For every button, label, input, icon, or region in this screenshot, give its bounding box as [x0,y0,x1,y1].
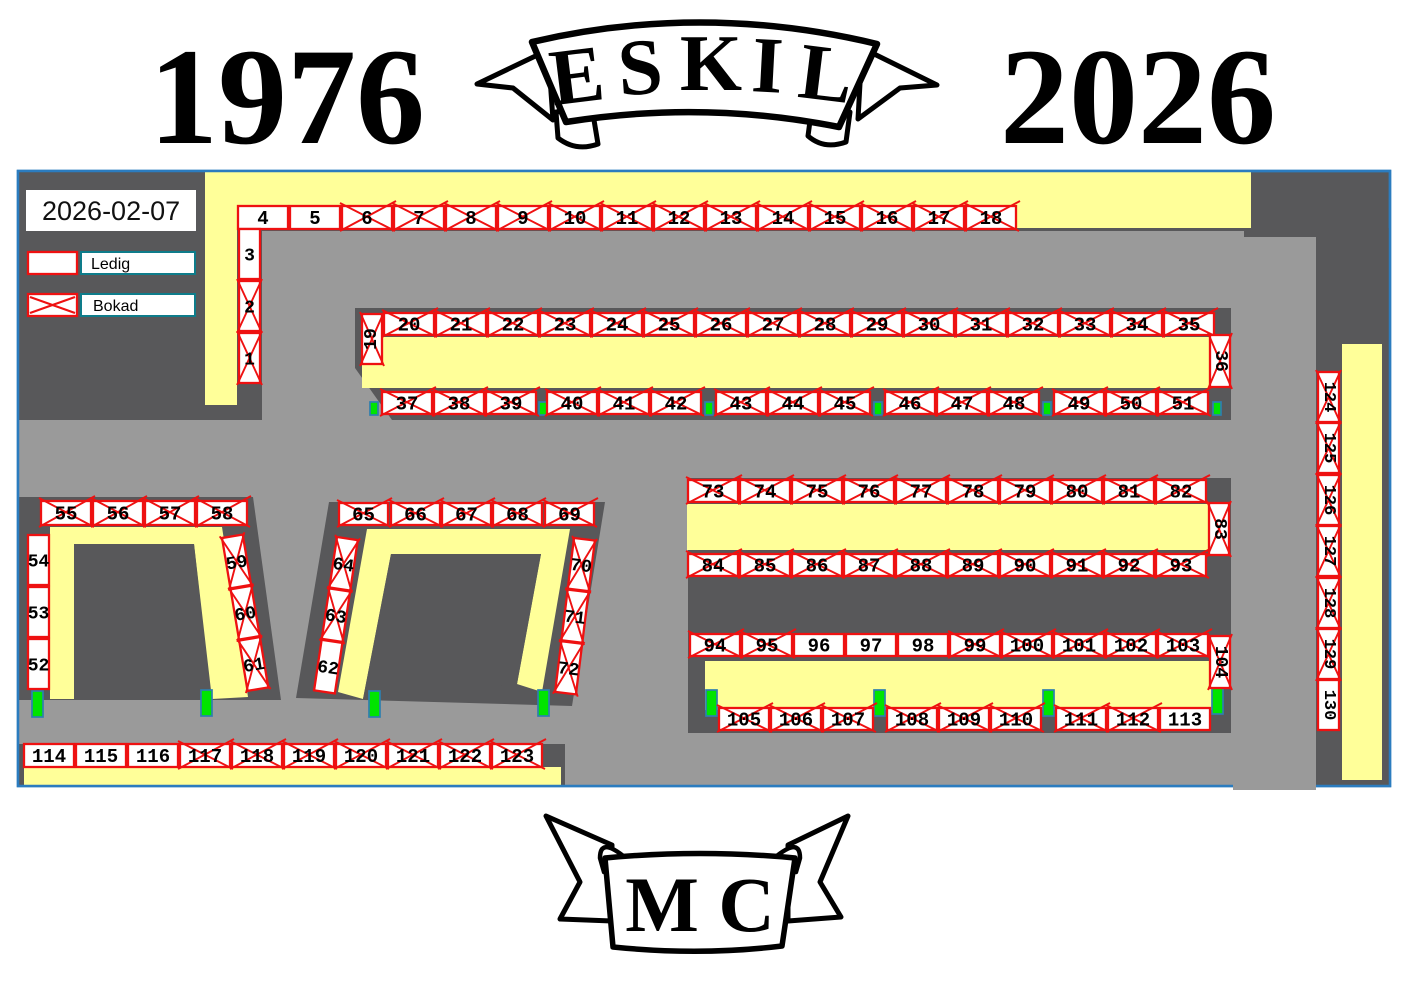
svg-text:114: 114 [32,746,66,768]
svg-text:53: 53 [28,605,50,625]
svg-text:110: 110 [999,710,1033,732]
svg-text:28: 28 [814,315,837,337]
svg-text:14: 14 [772,208,795,230]
svg-text:47: 47 [951,394,974,416]
svg-text:75: 75 [806,482,829,504]
svg-text:29: 29 [866,315,889,337]
svg-text:127: 127 [1319,536,1338,567]
svg-text:7: 7 [413,208,424,230]
svg-text:5: 5 [309,208,320,230]
svg-text:87: 87 [858,556,881,578]
svg-text:1: 1 [244,351,255,371]
svg-text:9: 9 [517,208,528,230]
svg-text:46: 46 [899,394,922,416]
svg-text:109: 109 [947,710,981,732]
svg-text:58: 58 [211,504,234,526]
svg-text:90: 90 [1014,556,1037,578]
svg-text:51: 51 [1172,394,1195,416]
svg-text:12: 12 [668,208,691,230]
svg-text:130: 130 [1319,690,1338,721]
svg-text:13: 13 [720,208,743,230]
svg-text:70: 70 [569,556,593,578]
svg-text:66: 66 [404,505,427,527]
svg-text:77: 77 [910,482,933,504]
svg-text:67: 67 [455,505,478,527]
svg-text:118: 118 [240,746,274,768]
svg-text:122: 122 [448,746,482,768]
svg-text:112: 112 [1116,710,1150,732]
svg-text:16: 16 [876,208,899,230]
svg-text:40: 40 [561,394,584,416]
svg-text:M C: M C [625,861,774,948]
svg-text:113: 113 [1168,710,1202,732]
svg-text:120: 120 [344,746,378,768]
svg-text:Ledig: Ledig [91,256,130,273]
svg-text:102: 102 [1114,636,1148,658]
svg-text:74: 74 [754,482,777,504]
svg-text:80: 80 [1066,482,1089,504]
svg-text:94: 94 [704,636,727,658]
svg-text:96: 96 [808,636,831,658]
svg-text:100: 100 [1010,636,1044,658]
svg-text:73: 73 [702,482,725,504]
svg-text:124: 124 [1319,382,1338,413]
svg-text:56: 56 [107,504,130,526]
svg-text:24: 24 [606,315,629,337]
svg-text:19: 19 [362,328,382,350]
svg-text:42: 42 [665,394,688,416]
svg-text:64: 64 [331,555,356,578]
svg-text:129: 129 [1319,639,1338,670]
svg-text:93: 93 [1170,556,1193,578]
svg-text:52: 52 [28,657,50,677]
svg-text:11: 11 [616,208,639,230]
svg-text:106: 106 [779,710,813,732]
svg-text:38: 38 [448,394,471,416]
svg-text:97: 97 [860,636,883,658]
svg-text:1976: 1976 [149,20,425,173]
svg-text:116: 116 [136,746,170,768]
svg-text:126: 126 [1319,485,1338,516]
svg-text:8: 8 [465,208,476,230]
svg-text:32: 32 [1022,315,1045,337]
svg-text:4: 4 [257,208,268,230]
svg-text:81: 81 [1118,482,1141,504]
svg-text:Bokad: Bokad [93,298,138,315]
svg-text:65: 65 [352,505,375,527]
svg-text:23: 23 [554,315,577,337]
svg-text:99: 99 [964,636,987,658]
svg-text:10: 10 [564,208,587,230]
svg-text:98: 98 [912,636,935,658]
svg-text:26: 26 [710,315,733,337]
svg-text:15: 15 [824,208,847,230]
svg-text:59: 59 [225,552,250,575]
svg-text:79: 79 [1014,482,1037,504]
svg-text:92: 92 [1118,556,1141,578]
svg-text:91: 91 [1066,556,1089,578]
svg-text:107: 107 [831,710,865,732]
svg-text:41: 41 [613,394,636,416]
svg-text:104: 104 [1210,646,1230,679]
svg-text:88: 88 [910,556,933,578]
svg-text:63: 63 [323,606,347,629]
svg-text:55: 55 [55,504,78,526]
svg-text:45: 45 [834,394,857,416]
svg-text:68: 68 [506,505,529,527]
svg-text:71: 71 [563,607,587,630]
svg-text:17: 17 [928,208,951,230]
svg-text:2: 2 [244,299,255,319]
svg-text:78: 78 [962,482,985,504]
svg-text:86: 86 [806,556,829,578]
svg-text:E: E [545,29,609,123]
svg-text:105: 105 [727,710,761,732]
svg-text:48: 48 [1003,394,1026,416]
svg-text:103: 103 [1166,636,1200,658]
svg-text:22: 22 [502,315,525,337]
svg-text:108: 108 [895,710,929,732]
svg-text:2026-02-07: 2026-02-07 [42,196,180,226]
svg-text:L: L [794,27,858,121]
svg-text:25: 25 [658,315,681,337]
svg-text:50: 50 [1120,394,1143,416]
svg-text:49: 49 [1068,394,1091,416]
svg-text:54: 54 [28,553,50,573]
svg-text:82: 82 [1170,482,1193,504]
svg-text:83: 83 [1209,518,1229,540]
svg-text:69: 69 [558,505,581,527]
svg-text:43: 43 [730,394,753,416]
svg-text:I: I [750,21,786,111]
svg-text:123: 123 [500,746,534,768]
svg-text:128: 128 [1319,588,1338,619]
svg-text:36: 36 [1210,350,1230,372]
svg-text:121: 121 [396,746,430,768]
svg-text:39: 39 [500,394,523,416]
svg-text:101: 101 [1062,636,1096,658]
svg-text:60: 60 [233,604,258,627]
svg-text:37: 37 [396,394,419,416]
svg-text:72: 72 [556,659,580,681]
svg-text:33: 33 [1074,315,1097,337]
svg-text:89: 89 [962,556,985,578]
svg-text:84: 84 [702,556,725,578]
svg-text:K: K [680,20,742,108]
svg-text:3: 3 [244,247,255,267]
svg-text:76: 76 [858,482,881,504]
svg-text:95: 95 [756,636,779,658]
svg-text:57: 57 [159,504,182,526]
svg-text:111: 111 [1064,710,1098,732]
svg-text:31: 31 [970,315,993,337]
svg-text:6: 6 [361,208,372,230]
svg-text:2026: 2026 [1000,20,1276,173]
svg-text:119: 119 [292,746,326,768]
svg-text:85: 85 [754,556,777,578]
svg-text:117: 117 [188,746,222,768]
svg-text:18: 18 [980,208,1003,230]
svg-text:115: 115 [84,746,118,768]
svg-text:35: 35 [1178,315,1201,337]
svg-text:S: S [615,23,666,114]
svg-text:20: 20 [398,315,421,337]
svg-text:21: 21 [450,315,473,337]
svg-text:44: 44 [782,394,805,416]
svg-text:62: 62 [316,658,340,681]
svg-text:61: 61 [242,655,267,678]
svg-text:34: 34 [1126,315,1149,337]
svg-text:125: 125 [1319,433,1338,464]
svg-text:27: 27 [762,315,785,337]
svg-text:30: 30 [918,315,941,337]
